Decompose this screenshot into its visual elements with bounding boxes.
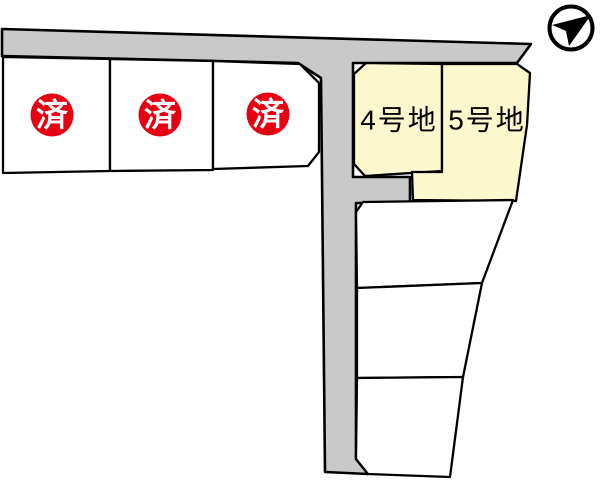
sold-badge-3-label: 済 — [252, 96, 285, 132]
site-plan-map: 済 済 済 4号地 5号地 — [0, 0, 600, 481]
site-plan-page: 済 済 済 4号地 5号地 — [0, 0, 600, 481]
lot-4-label: 4号地 — [360, 105, 438, 136]
lot-5-label: 5号地 — [448, 105, 526, 136]
lot-vacant-2 — [357, 283, 482, 378]
sold-lots: 済 済 済 — [3, 57, 319, 173]
compass — [550, 7, 593, 50]
lot-vacant-1 — [356, 200, 513, 288]
vacant-lots — [356, 200, 513, 477]
sold-badge-2-label: 済 — [144, 97, 177, 133]
lot-vacant-3 — [356, 377, 463, 477]
sold-badge-1-label: 済 — [36, 97, 69, 133]
